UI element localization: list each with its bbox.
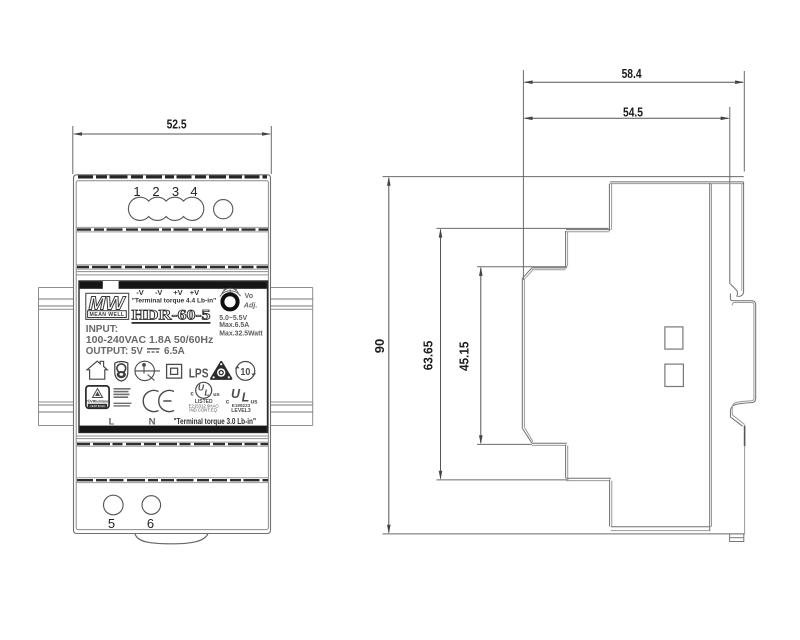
svg-text:6: 6: [147, 516, 154, 531]
svg-text:Vo: Vo: [245, 291, 254, 300]
svg-text:5: 5: [108, 516, 115, 531]
svg-text:L: L: [109, 416, 115, 427]
svg-text:INPUT:: INPUT:: [86, 324, 118, 335]
svg-text:58.4: 58.4: [622, 66, 643, 81]
svg-text:N: N: [149, 416, 156, 427]
svg-text:CERTIFIED: CERTIFIED: [90, 404, 107, 408]
svg-text:L: L: [204, 388, 209, 398]
svg-text:10: 10: [240, 366, 250, 378]
svg-text:-V: -V: [136, 288, 144, 297]
svg-text:"Terminal torque 4.4 Lb-in": "Terminal torque 4.4 Lb-in": [132, 297, 217, 304]
svg-text:5.0~5.5V: 5.0~5.5V: [219, 315, 247, 322]
svg-text:HDR-60-5: HDR-60-5: [132, 307, 211, 323]
svg-text:LEVEL3: LEVEL3: [231, 408, 251, 414]
svg-text:U: U: [231, 387, 241, 401]
svg-text:"Terminal torque 3.0 Lb-in": "Terminal torque 3.0 Lb-in": [174, 417, 257, 426]
svg-text:LPS: LPS: [189, 365, 209, 380]
svg-text:6.5A: 6.5A: [164, 346, 185, 357]
svg-text:Max.32.5Watt: Max.32.5Watt: [219, 330, 263, 337]
svg-text:+V: +V: [190, 288, 199, 297]
svg-text:52.5: 52.5: [167, 117, 187, 132]
svg-text:100-240VAC 1.8A 50/60Hz: 100-240VAC 1.8A 50/60Hz: [86, 335, 214, 346]
svg-text:OUTPUT: 5V: OUTPUT: 5V: [86, 346, 144, 357]
svg-text:Max.6.5A: Max.6.5A: [219, 322, 249, 329]
svg-text:63.65: 63.65: [422, 341, 436, 371]
svg-text:us: us: [250, 400, 258, 406]
svg-text:MEAN WELL: MEAN WELL: [89, 312, 124, 318]
svg-text:us: us: [213, 392, 219, 398]
svg-text:45.15: 45.15: [457, 342, 471, 372]
svg-text:-V: -V: [155, 288, 163, 297]
svg-text:c: c: [226, 399, 230, 406]
svg-text:Adj.: Adj.: [243, 301, 258, 310]
svg-text:IND.CONT.EQ.: IND.CONT.EQ.: [189, 408, 218, 413]
svg-text:54.5: 54.5: [623, 104, 643, 119]
svg-text:90: 90: [372, 339, 387, 354]
svg-text:+V: +V: [173, 288, 182, 297]
